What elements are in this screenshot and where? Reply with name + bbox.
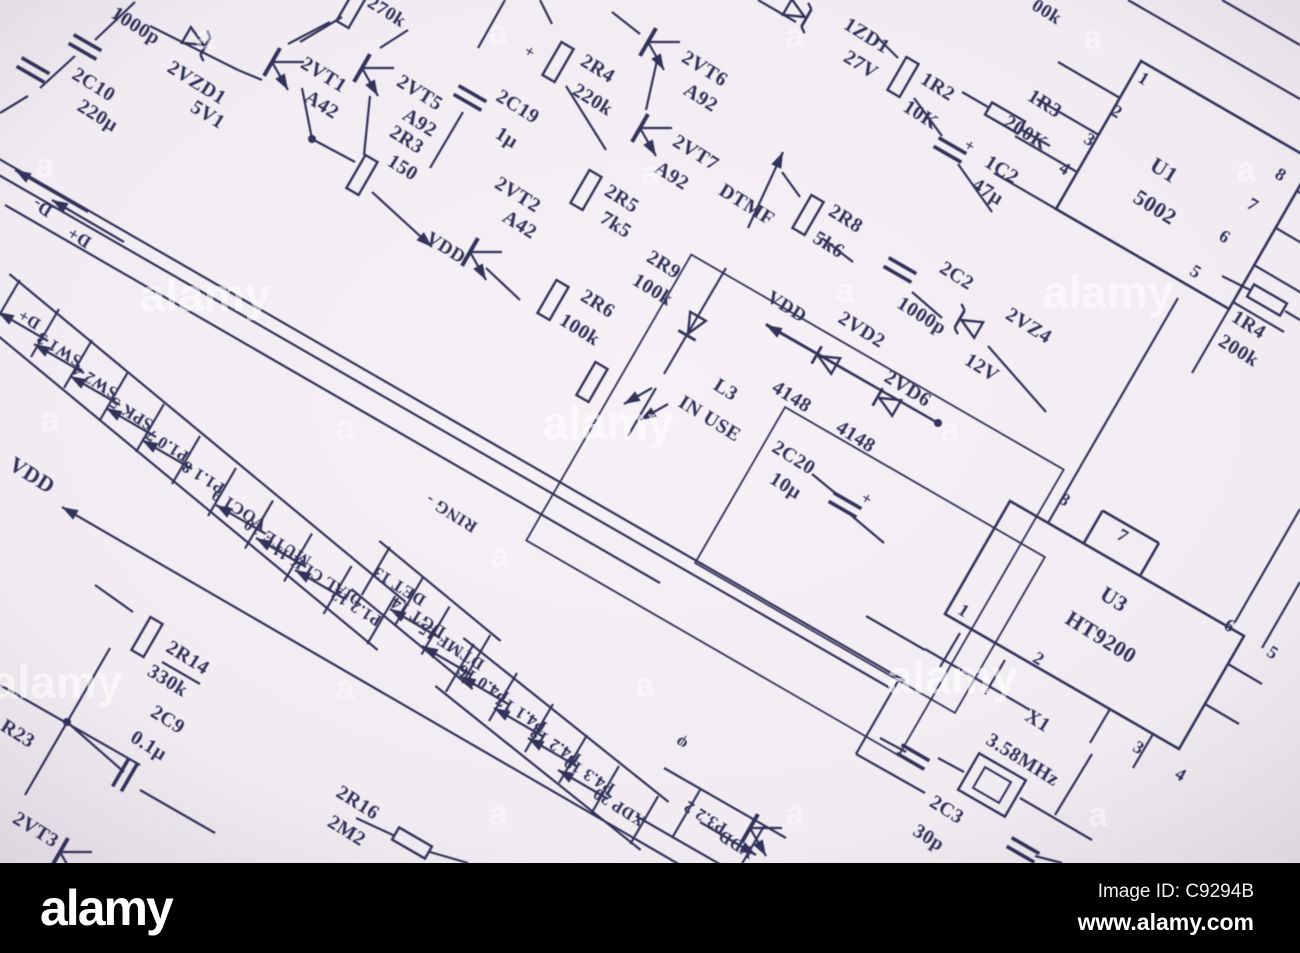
alamy-watermark-letter: a: [41, 401, 61, 439]
footer-meta: Image ID: C9294B www.alamy.com: [1078, 881, 1254, 936]
alamy-watermark-letter: a: [636, 666, 656, 704]
alamy-watermark-letter: a: [489, 14, 509, 52]
alamy-watermark-letter: a: [36, 147, 56, 185]
alamy-watermark-letter: a: [336, 409, 356, 447]
alamy-watermark-letter: a: [941, 411, 961, 449]
alamy-url-text: www.alamy.com: [1078, 909, 1254, 936]
alamy-watermark-letter: a: [786, 795, 806, 833]
alamy-watermark-letter: a: [1084, 19, 1104, 57]
alamy-logo: alamy: [40, 879, 172, 937]
alamy-watermark-letter: a: [836, 272, 856, 310]
alamy-watermark-letter: a: [491, 537, 511, 575]
alamy-watermark-letter: a: [1089, 796, 1109, 834]
alamy-watermark: alamy: [543, 397, 674, 449]
image-id-text: Image ID: C9294B: [1078, 881, 1254, 903]
stock-photo-schematic: 1000p2VZD15V12C10220µ2VT1A422VT5A92270k2…: [0, 0, 1300, 953]
alamy-watermark-letter: a: [196, 19, 216, 57]
alamy-watermark: alamy: [0, 656, 123, 708]
alamy-watermark: alamy: [140, 269, 271, 321]
alamy-watermark-letter: a: [489, 795, 509, 833]
alamy-watermark-letter: a: [1237, 151, 1257, 189]
alamy-watermark: alamy: [1043, 266, 1174, 318]
circuit-schematic-photo: 1000p2VZD15V12C10220µ2VT1A422VT5A92270k2…: [0, 0, 1300, 863]
alamy-footer-bar: alamy Image ID: C9294B www.alamy.com: [0, 863, 1300, 953]
alamy-watermark: alamy: [887, 651, 1018, 703]
alamy-watermark-letter: a: [336, 669, 356, 707]
alamy-watermark-letter: a: [641, 154, 661, 192]
alamy-watermark-letter: a: [786, 17, 806, 55]
